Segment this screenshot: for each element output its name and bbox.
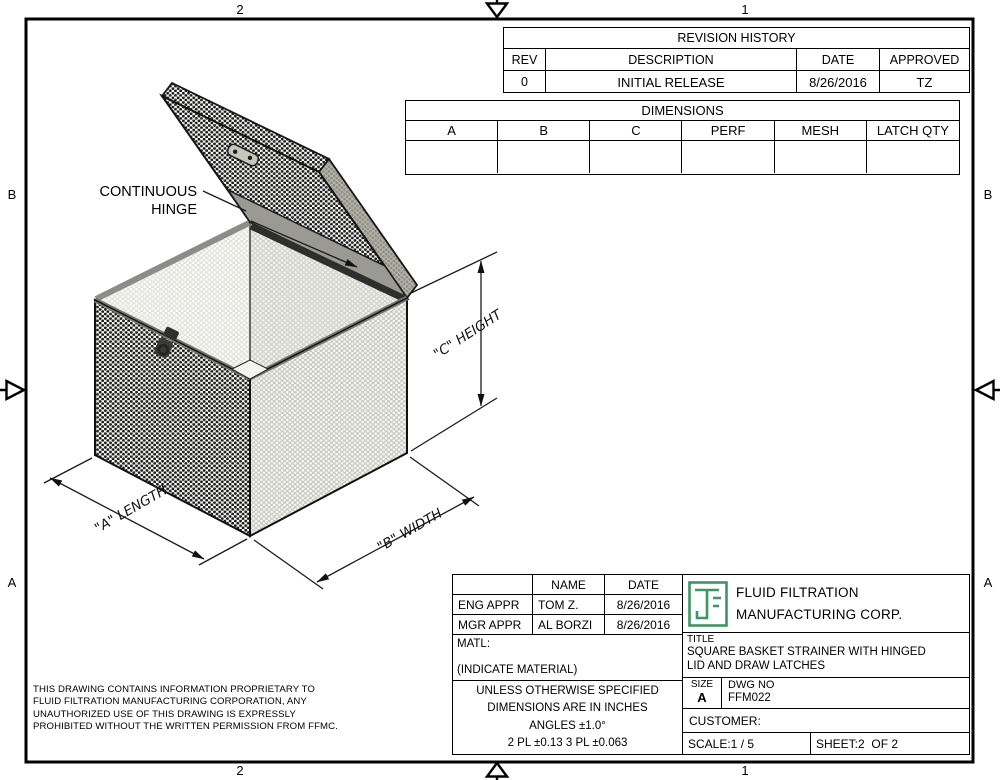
approval-role: ENG APPR xyxy=(453,595,533,615)
proprietary-line: FLUID FILTRATION MANUFACTURING CORPORATI… xyxy=(33,696,338,708)
approvals-corner-cell xyxy=(453,575,533,595)
drawing-title-cell: TITLE SQUARE BASKET STRAINER WITH HINGED… xyxy=(683,633,969,678)
material-label: MATL: xyxy=(457,638,678,650)
sheet-cell: SHEET:2 OF 2 xyxy=(811,733,969,755)
dim-value-perf xyxy=(682,141,774,173)
approvals-block: NAME DATE ENG APPR TOM Z. 8/26/2016 MGR … xyxy=(452,574,682,755)
revision-col-approved: APPROVED xyxy=(880,49,969,71)
revision-row: 0 INITIAL RELEASE 8/26/2016 TZ xyxy=(504,71,969,93)
approval-date: 8/26/2016 xyxy=(605,595,682,615)
dim-value-b xyxy=(498,141,590,173)
approval-name: AL BORZI xyxy=(533,615,605,635)
dim-b-width-label: "B" WIDTH xyxy=(375,506,445,556)
zone-label-left-a: A xyxy=(4,576,20,590)
proprietary-line: THIS DRAWING CONTAINS INFORMATION PROPRI… xyxy=(33,684,338,696)
approval-name: TOM Z. xyxy=(533,595,605,615)
size-value: A xyxy=(697,691,706,705)
dwg-no-cell: DWG NO FFM022 xyxy=(722,678,969,708)
company-cell: FLUID FILTRATION MANUFACTURING CORP. xyxy=(683,575,969,633)
revision-history-table: REVISION HISTORY REV DESCRIPTION DATE AP… xyxy=(503,27,970,93)
dim-col-a: A xyxy=(406,121,498,141)
approvals-name-header: NAME xyxy=(533,575,605,595)
hinge-callout-line1: CONTINUOUS xyxy=(100,184,197,200)
tolerance-note: UNLESS OTHERWISE SPECIFIED DIMENSIONS AR… xyxy=(453,681,682,755)
dim-value-c xyxy=(590,141,682,173)
proprietary-line: PROHIBITED WITHOUT THE WRITTEN PERMISSIO… xyxy=(33,721,338,733)
revision-col-date: DATE xyxy=(797,49,880,71)
dim-c-height-label: "C" HEIGHT xyxy=(431,306,506,363)
scale-cell: SCALE:1 / 5 xyxy=(683,733,811,755)
proprietary-notice: THIS DRAWING CONTAINS INFORMATION PROPRI… xyxy=(33,684,338,733)
dim-value-latch-qty xyxy=(867,141,959,173)
zone-label-right-a: A xyxy=(980,576,996,590)
revision-date-value: 8/26/2016 xyxy=(797,71,880,93)
zone-label-left-b: B xyxy=(4,188,20,202)
revision-rev-value: 0 xyxy=(504,71,546,93)
customer-cell: CUSTOMER: xyxy=(683,709,969,733)
revision-col-description: DESCRIPTION xyxy=(546,49,797,71)
approval-role: MGR APPR xyxy=(453,615,533,635)
revision-description-value: INITIAL RELEASE xyxy=(546,71,797,93)
zone-label-bottom-2: 2 xyxy=(232,764,248,778)
revision-approved-value: TZ xyxy=(880,71,969,93)
approval-row-mgr: MGR APPR AL BORZI 8/26/2016 xyxy=(453,615,682,635)
dim-col-perf: PERF xyxy=(682,121,774,141)
revision-table-title: REVISION HISTORY xyxy=(504,28,969,49)
zone-label-top-2: 2 xyxy=(232,3,248,17)
revision-col-rev: REV xyxy=(504,49,546,71)
approval-row-eng: ENG APPR TOM Z. 8/26/2016 xyxy=(453,595,682,615)
tolerance-line: 2 PL ±0.13 3 PL ±0.063 xyxy=(508,735,628,753)
drawing-title-line2: LID AND DRAW LATCHES xyxy=(687,660,965,674)
dim-col-mesh: MESH xyxy=(775,121,867,141)
approval-date: 8/26/2016 xyxy=(605,615,682,635)
approvals-date-header: DATE xyxy=(605,575,682,595)
title-label: TITLE xyxy=(687,634,965,646)
company-logo-icon xyxy=(688,581,728,627)
proprietary-line: UNAUTHORIZED USE OF THIS DRAWING IS EXPR… xyxy=(33,709,338,721)
center-mark-top xyxy=(487,0,507,17)
center-mark-bottom xyxy=(487,763,507,780)
hinge-callout: CONTINUOUS HINGE xyxy=(100,184,198,218)
dimensions-table-title: DIMENSIONS xyxy=(406,101,959,121)
dimensions-table: DIMENSIONS A B C PERF MESH LATCH QTY xyxy=(405,100,960,175)
dwg-no-value: FFM022 xyxy=(728,692,963,705)
drawing-sheet: "C" HEIGHT "A" LENGTH "B" WIDTH CONTINUO… xyxy=(0,0,1000,780)
zone-label-bottom-1: 1 xyxy=(737,764,753,778)
zone-label-right-b: B xyxy=(980,188,996,202)
dim-col-b: B xyxy=(498,121,590,141)
size-cell: SIZE A xyxy=(683,678,722,708)
company-name-line1: FLUID FILTRATION xyxy=(736,582,902,604)
dwg-no-label: DWG NO xyxy=(728,679,963,692)
material-cell: MATL: (INDICATE MATERIAL) xyxy=(453,635,682,681)
tolerance-line: DIMENSIONS ARE IN INCHES xyxy=(487,700,647,718)
company-name-line2: MANUFACTURING CORP. xyxy=(736,604,902,626)
dim-col-c: C xyxy=(590,121,682,141)
basket-isometric-view xyxy=(95,83,417,536)
hinge-callout-line2: HINGE xyxy=(151,202,197,218)
material-value: (INDICATE MATERIAL) xyxy=(457,664,678,676)
tolerance-line: UNLESS OTHERWISE SPECIFIED xyxy=(476,683,659,701)
zone-label-top-1: 1 xyxy=(737,3,753,17)
dim-value-mesh xyxy=(775,141,867,173)
dim-col-latch-qty: LATCH QTY xyxy=(867,121,959,141)
customer-label: CUSTOMER: xyxy=(689,714,761,728)
center-mark-right xyxy=(976,381,1000,399)
center-mark-left xyxy=(0,381,24,399)
drawing-title-line1: SQUARE BASKET STRAINER WITH HINGED xyxy=(687,646,965,660)
tolerance-line: ANGLES ±1.0° xyxy=(529,718,606,736)
dim-a-length-label: "A" LENGTH xyxy=(92,482,170,536)
title-block: FLUID FILTRATION MANUFACTURING CORP. TIT… xyxy=(682,574,970,755)
dimensions-empty-row xyxy=(406,141,959,173)
dim-value-a xyxy=(406,141,498,173)
